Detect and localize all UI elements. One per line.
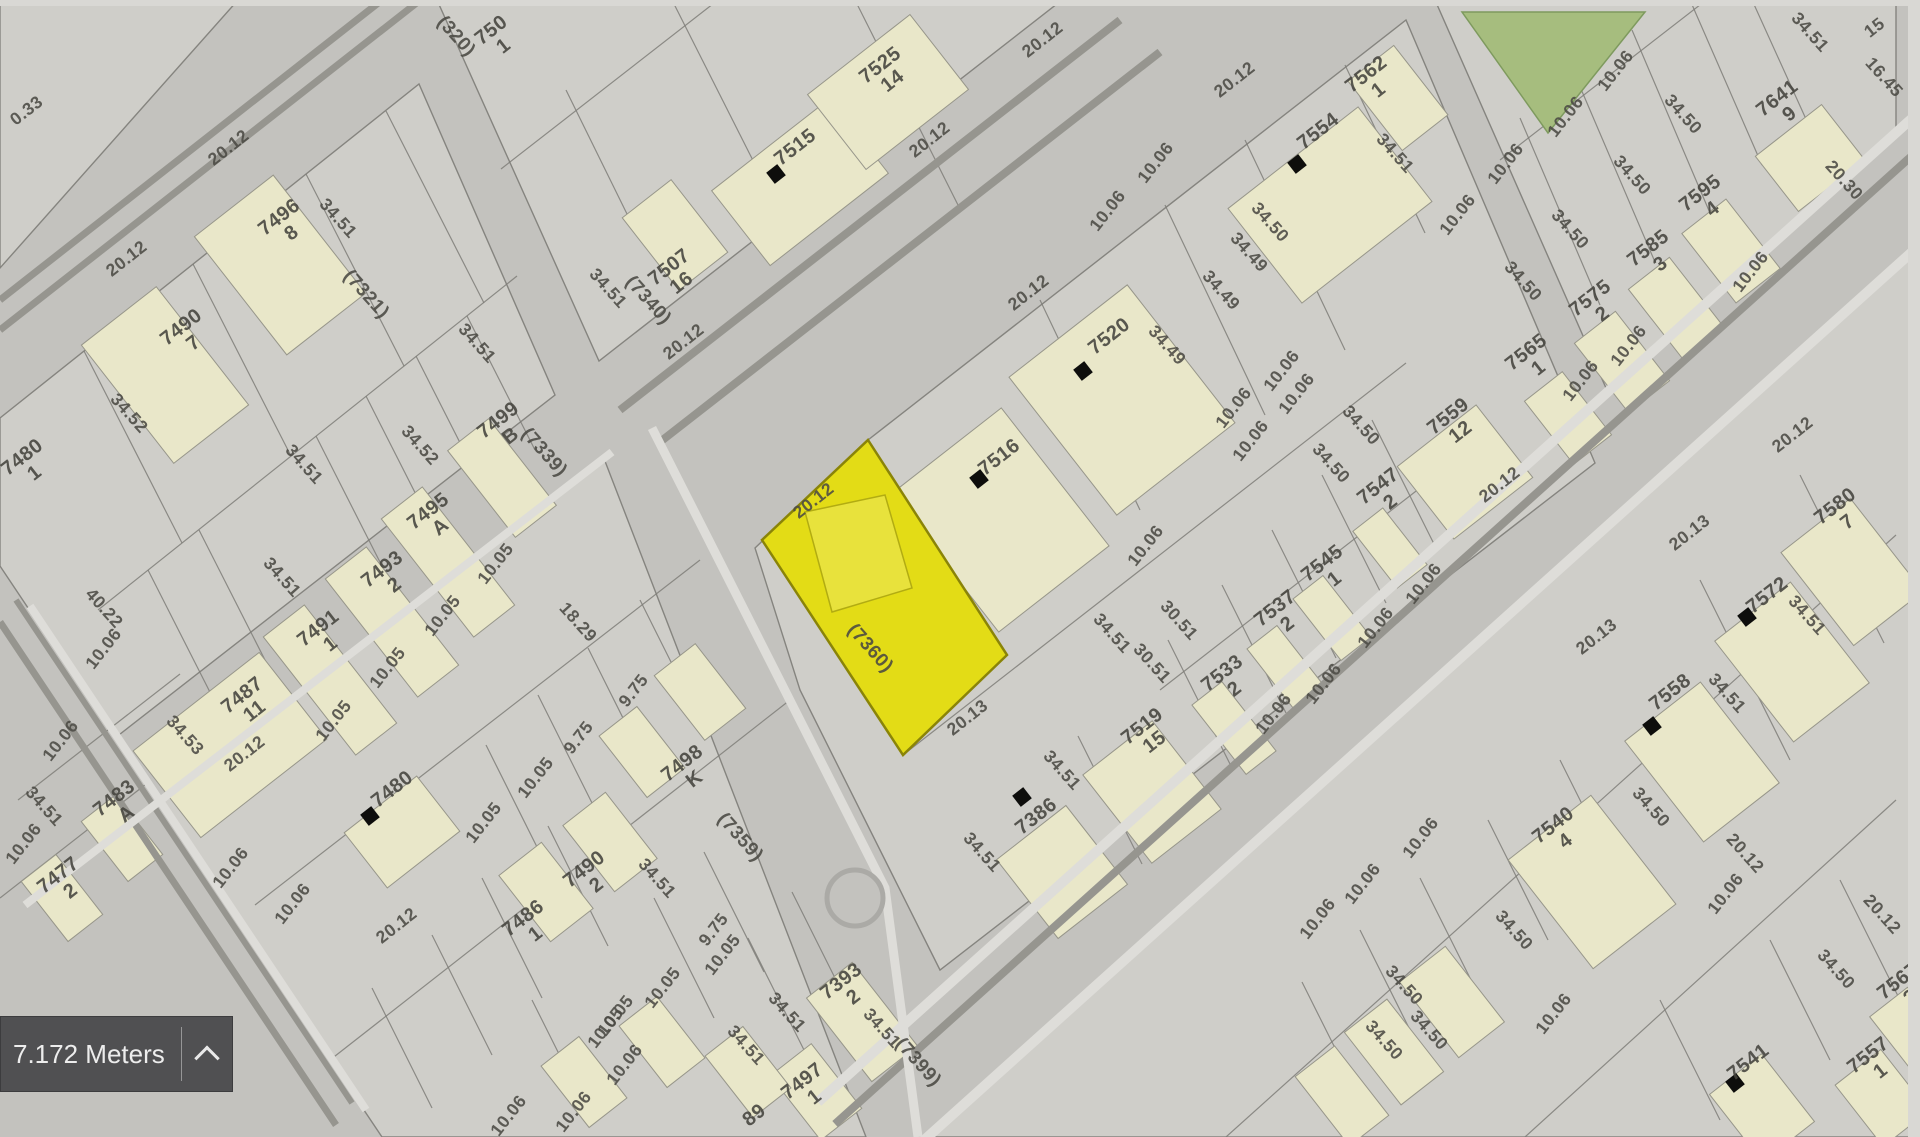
measurement-toolbar: 7.172 Meters: [0, 1016, 233, 1092]
collapse-toolbar-button[interactable]: [182, 1017, 232, 1091]
right-edge-strip: [1908, 0, 1920, 1137]
roundabout: [827, 870, 883, 926]
top-edge-strip: [0, 0, 1920, 6]
map-viewport[interactable]: 74968749077480174871174911749327495A7499…: [0, 0, 1920, 1137]
cadastral-map[interactable]: 74968749077480174871174911749327495A7499…: [0, 0, 1920, 1137]
measurement-value: 7.172 Meters: [1, 1039, 181, 1070]
chevron-up-icon: [194, 1046, 219, 1071]
